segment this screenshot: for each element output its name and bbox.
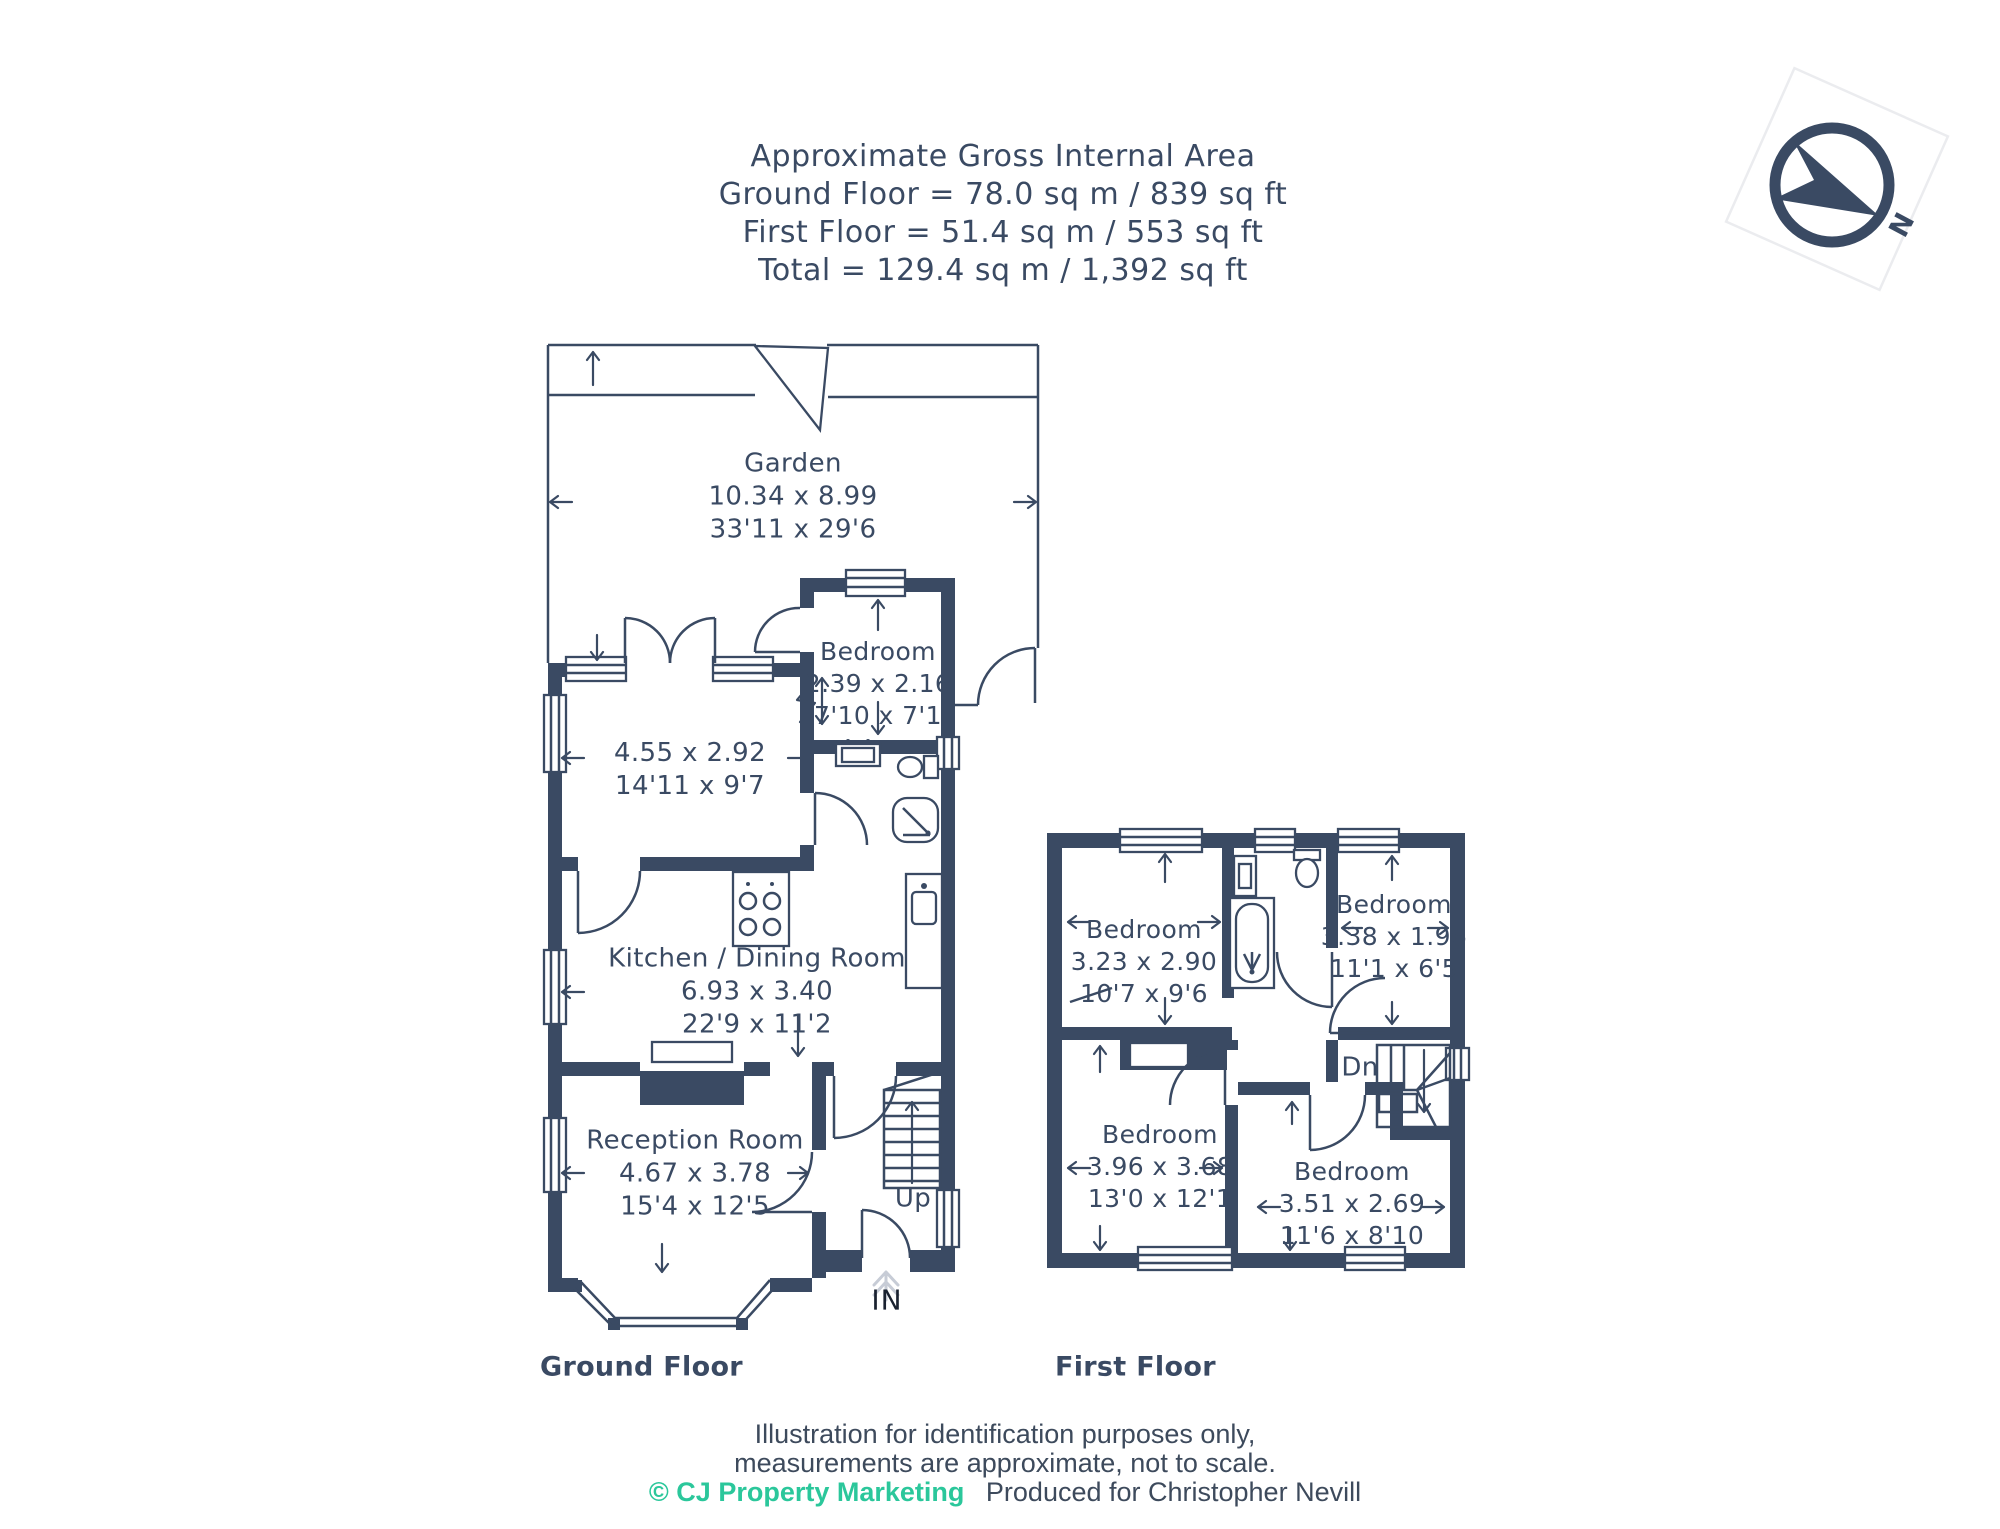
room-name: Bedroom bbox=[1279, 1156, 1425, 1188]
compass-icon bbox=[1726, 68, 1948, 290]
hob-icon bbox=[733, 872, 789, 946]
credits-line: © CJ Property Marketing Produced for Chr… bbox=[649, 1478, 1361, 1507]
window bbox=[544, 950, 566, 1024]
area-ground: Ground Floor = 78.0 sq m / 839 sq ft bbox=[719, 176, 1287, 214]
room-name: Reception Room bbox=[586, 1125, 803, 1158]
fireplace-hearth bbox=[652, 1042, 732, 1062]
ff-bedroom2-door bbox=[1330, 978, 1385, 1033]
room-dims-metric: 3.38 x 1.96 bbox=[1321, 921, 1467, 953]
shower-icon bbox=[893, 798, 938, 842]
first-floor-title: First Floor bbox=[1055, 1352, 1216, 1383]
disclaimer-line2: measurements are approximate, not to sca… bbox=[649, 1449, 1361, 1478]
room-dims-metric: 4.67 x 3.78 bbox=[586, 1158, 803, 1191]
bathtub-icon bbox=[1230, 898, 1274, 988]
disclaimer-line1: Illustration for identification purposes… bbox=[649, 1420, 1361, 1449]
room-label-garden: Garden 10.34 x 8.99 33'11 x 29'6 bbox=[708, 448, 877, 547]
room-label-reception: Reception Room 4.67 x 3.78 15'4 x 12'5 bbox=[586, 1125, 803, 1224]
area-summary-title: Approximate Gross Internal Area bbox=[719, 138, 1287, 176]
room-label-gf-bedroom: Bedroom 2.39 x 2.16 7'10 x 7'1 bbox=[805, 636, 951, 732]
room-name: Bedroom bbox=[1087, 1119, 1233, 1151]
window bbox=[1138, 1247, 1232, 1270]
area-first: First Floor = 51.4 sq m / 553 sq ft bbox=[719, 214, 1287, 252]
room-name: Kitchen / Dining Room bbox=[608, 943, 906, 976]
room-name: Bedroom bbox=[1321, 889, 1467, 921]
room-dims-imperial: 33'11 x 29'6 bbox=[708, 514, 877, 547]
ground-toilet-icon bbox=[898, 756, 938, 778]
ff-bedroom4-door bbox=[1310, 1095, 1365, 1150]
room-dims-metric: 2.39 x 2.16 bbox=[805, 668, 951, 700]
floorplan-page: Approximate Gross Internal Area Ground F… bbox=[0, 0, 2000, 1529]
bathroom-door bbox=[815, 793, 867, 845]
room-dims-metric: 3.96 x 3.68 bbox=[1087, 1151, 1233, 1183]
copyright-credit: © CJ Property Marketing bbox=[649, 1477, 964, 1507]
disclaimer: Illustration for identification purposes… bbox=[649, 1420, 1361, 1507]
room-dims-imperial: 13'0 x 12'1 bbox=[1087, 1183, 1233, 1215]
room-dims-imperial: 14'11 x 9'7 bbox=[614, 770, 766, 803]
room-label-kitchen: Kitchen / Dining Room 6.93 x 3.40 22'9 x… bbox=[608, 943, 906, 1042]
ground-floor-title: Ground Floor bbox=[540, 1352, 743, 1383]
bay-window bbox=[574, 1280, 776, 1326]
entry-in-label: IN bbox=[871, 1284, 902, 1317]
room-dims-imperial: 10'7 x 9'6 bbox=[1071, 978, 1217, 1010]
room-label-ff-bedroom1: Bedroom 3.23 x 2.90 10'7 x 9'6 bbox=[1071, 914, 1217, 1010]
room-dims-imperial: 7'10 x 7'1 bbox=[805, 700, 951, 732]
area-total: Total = 129.4 sq m / 1,392 sq ft bbox=[719, 252, 1287, 290]
kitchen-door bbox=[578, 871, 640, 933]
french-door-right bbox=[670, 618, 715, 663]
room-dims-metric: 4.55 x 2.92 bbox=[614, 737, 766, 770]
window bbox=[566, 657, 626, 681]
room-label-ff-bedroom3: Bedroom 3.96 x 3.68 13'0 x 12'1 bbox=[1087, 1119, 1233, 1215]
ground-bathroom-sink-icon bbox=[836, 739, 880, 766]
entry-door bbox=[862, 1210, 910, 1258]
window bbox=[713, 657, 773, 681]
room-label-sitting-room: 4.55 x 2.92 14'11 x 9'7 bbox=[614, 737, 766, 803]
window bbox=[937, 737, 959, 769]
room-dims-imperial: 22'9 x 11'2 bbox=[608, 1009, 906, 1042]
chimney-recess bbox=[1130, 1043, 1188, 1067]
area-summary: Approximate Gross Internal Area Ground F… bbox=[719, 138, 1287, 290]
side-gate-door bbox=[955, 648, 1035, 705]
room-name: Bedroom bbox=[1071, 914, 1217, 946]
room-name: Garden bbox=[708, 448, 877, 481]
room-dims-metric: 3.51 x 2.69 bbox=[1279, 1188, 1425, 1220]
window bbox=[1255, 829, 1295, 852]
room-dims-metric: 6.93 x 3.40 bbox=[608, 976, 906, 1009]
ff-sink-icon bbox=[1234, 856, 1256, 896]
room-label-ff-bedroom2: Bedroom 3.38 x 1.96 11'1 x 6'5 bbox=[1321, 889, 1467, 985]
window bbox=[937, 1190, 959, 1247]
stairs-up bbox=[884, 1072, 940, 1188]
room-dims-imperial: 11'1 x 6'5 bbox=[1321, 953, 1467, 985]
room-label-ff-bedroom4: Bedroom 3.51 x 2.69 11'6 x 8'10 bbox=[1279, 1156, 1425, 1252]
room-dims-imperial: 11'6 x 8'10 bbox=[1279, 1220, 1425, 1252]
room-name: Bedroom bbox=[805, 636, 951, 668]
room-dims-metric: 10.34 x 8.99 bbox=[708, 481, 877, 514]
window bbox=[846, 570, 905, 596]
room-dims-metric: 3.23 x 2.90 bbox=[1071, 946, 1217, 978]
garden-bedroom-door bbox=[755, 608, 800, 652]
ff-toilet-icon bbox=[1294, 850, 1320, 887]
window bbox=[1338, 829, 1399, 852]
window bbox=[1120, 829, 1202, 852]
chimney-breast bbox=[640, 1071, 744, 1105]
stairs-down-label: Dn bbox=[1341, 1052, 1378, 1085]
garden-gate-icon bbox=[755, 346, 828, 430]
window bbox=[544, 1118, 566, 1192]
window bbox=[544, 695, 566, 772]
french-door-left bbox=[625, 618, 670, 663]
stairs-up-label: Up bbox=[895, 1183, 931, 1216]
produced-for: Produced for Christopher Nevill bbox=[986, 1477, 1361, 1507]
kitchen-sink-icon bbox=[906, 874, 942, 988]
room-dims-imperial: 15'4 x 12'5 bbox=[586, 1191, 803, 1224]
